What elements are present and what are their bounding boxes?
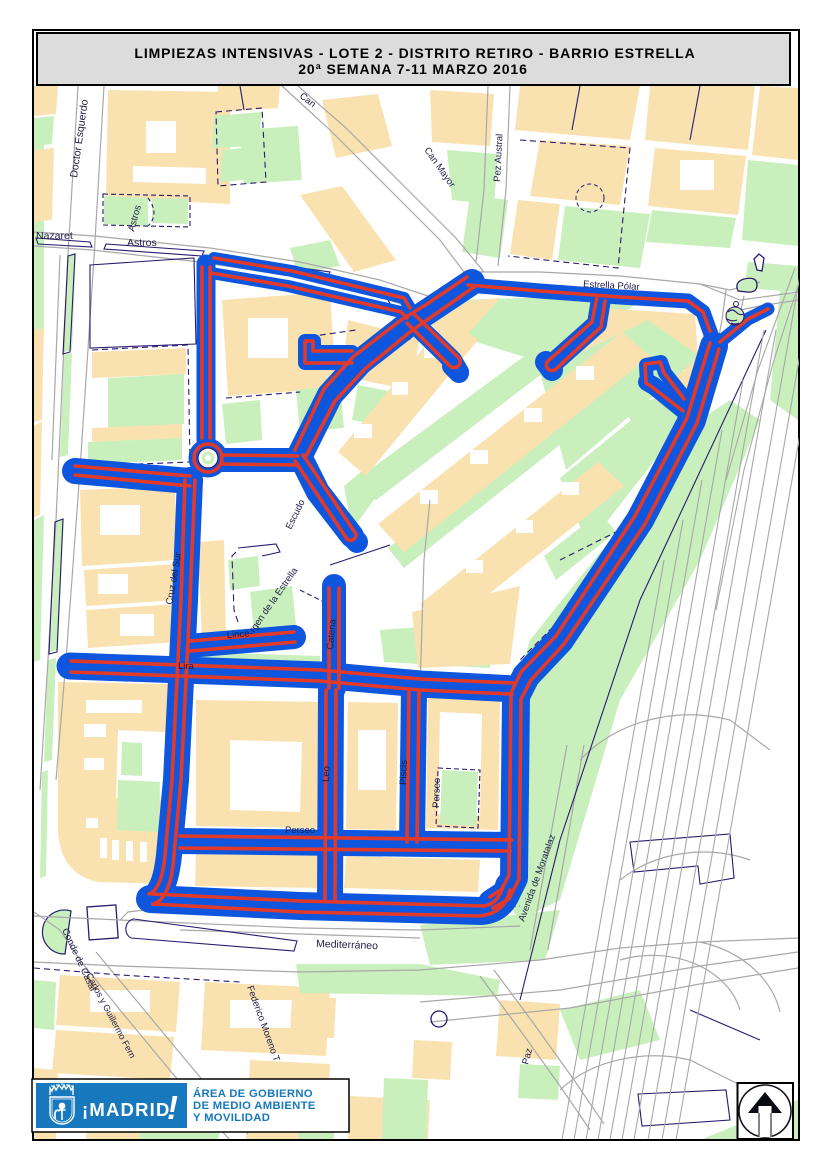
svg-text:Lira: Lira [178, 661, 195, 672]
svg-text:Leo: Leo [321, 766, 333, 782]
svg-text:Piscis: Piscis [398, 760, 410, 785]
svg-text:Mediterráneo: Mediterráneo [316, 938, 378, 952]
svg-text:¡MADRID: ¡MADRID [82, 1099, 171, 1120]
svg-text:Perseo: Perseo [285, 825, 315, 836]
svg-text:Astros: Astros [127, 237, 157, 249]
svg-text:Y MOVILIDAD: Y MOVILIDAD [193, 1112, 270, 1124]
svg-text:20ª SEMANA 7-11 MARZO 2016: 20ª SEMANA 7-11 MARZO 2016 [298, 61, 528, 77]
svg-text:Nazaret: Nazaret [36, 230, 73, 242]
svg-text:LIMPIEZAS INTENSIVAS - LOTE 2: LIMPIEZAS INTENSIVAS - LOTE 2 - DISTRITO… [134, 45, 695, 61]
svg-text:ÁREA DE GOBIERNO: ÁREA DE GOBIERNO [193, 1087, 313, 1100]
svg-text:Perseo: Perseo [431, 778, 443, 808]
svg-text:!: ! [167, 1089, 178, 1126]
svg-text:DE MEDIO AMBIENTE: DE MEDIO AMBIENTE [193, 1100, 316, 1112]
